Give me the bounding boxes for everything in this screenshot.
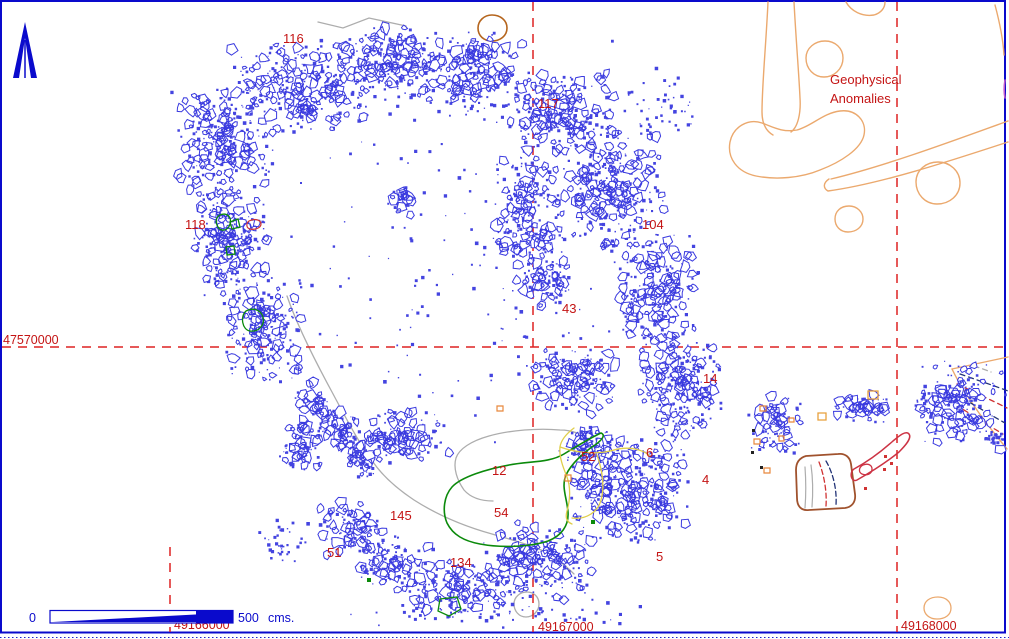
rubble-cluster-stones <box>754 391 803 452</box>
gray-circle-bottom <box>514 592 539 617</box>
anomaly-kidney <box>729 111 864 178</box>
rubble-scatter-layer <box>170 22 1007 629</box>
grid-label-easting: 49168000 <box>901 619 957 633</box>
grid-label-easting: 49167000 <box>538 620 594 634</box>
scale-bar-solid-end <box>196 611 233 623</box>
feature-label-6: 6 <box>646 445 653 460</box>
feature-label-52: 52 <box>581 449 595 464</box>
anomaly-line-left2 <box>791 2 800 132</box>
feature-label-134: 134 <box>450 555 472 570</box>
rubble-cluster-stones <box>529 348 620 419</box>
rubble-cluster-stones <box>834 390 890 421</box>
feature-label-43: 43 <box>562 301 576 316</box>
anomaly-circle-b <box>916 162 960 204</box>
geophysical-anomalies-label-line1: Geophysical <box>830 72 902 87</box>
geophysical-anomalies-label-line2: Anomalies <box>830 91 891 106</box>
trench-navy-dash <box>826 461 836 505</box>
feature-label-104: 104 <box>642 217 664 232</box>
trench-gray-line-1 <box>811 465 813 507</box>
feature-label-145: 145 <box>390 508 412 523</box>
anomaly-arc-top <box>846 2 885 15</box>
rubble-cluster-stones <box>419 36 527 103</box>
feature-label-5: 5 <box>656 549 663 564</box>
anomaly-edge-line <box>995 5 1004 55</box>
scale-max-label: 500 <box>238 611 259 625</box>
feature-label-117: 117 <box>538 96 559 111</box>
gray-zigzag-top <box>318 18 406 28</box>
anomaly-circle-c <box>835 206 863 232</box>
scale-unit-label: cms. <box>268 611 294 625</box>
rubble-cluster-stones <box>638 340 721 439</box>
red-blob-small <box>859 464 872 475</box>
edge-mark-magenta <box>1004 80 1005 98</box>
trench-red-dash <box>819 462 826 506</box>
rubble-cluster-stones <box>191 189 272 297</box>
handle-outline <box>851 433 910 481</box>
rubble-cluster-stones <box>347 407 453 462</box>
rubble-cluster-stones <box>484 520 596 605</box>
brown-circle <box>478 15 507 41</box>
yellow-square-2 <box>818 413 826 420</box>
feature-label-118: 118 <box>185 217 206 232</box>
rubble-cluster-dots <box>258 519 310 562</box>
rubble-cluster-stones <box>615 231 699 353</box>
rubble-cluster-stones <box>333 22 446 97</box>
geophysical-anomaly-layer <box>287 2 1008 617</box>
feature-label-54: 54 <box>494 505 508 520</box>
trench-gray-line-2 <box>805 467 806 508</box>
feature-label-51: 51 <box>327 545 341 560</box>
feature-label-14: 14 <box>703 371 717 386</box>
rubble-cluster-stones <box>388 187 416 219</box>
anomaly-line-left <box>762 2 773 135</box>
geophysical-anomalies-annotation: Geophysical Anomalies <box>830 72 902 106</box>
feature-label-12: 12 <box>492 463 506 478</box>
rubble-cluster-dots <box>624 67 694 134</box>
site-plan-canvas: 47570000491660004916700049168000 1161171… <box>0 0 1009 639</box>
fan-top-border <box>952 357 1008 369</box>
scale-bar: 0 500 cms. <box>29 611 294 626</box>
north-arrow <box>13 22 37 78</box>
feature-label-4: 4 <box>702 472 709 487</box>
anomaly-ellipse-bottom <box>924 597 951 619</box>
scale-zero-label: 0 <box>29 611 36 625</box>
map-viewport: 47570000491660004916700049168000 1161171… <box>0 0 1009 639</box>
orange-marks <box>497 406 794 481</box>
feature-label-116: 116 <box>283 31 304 46</box>
rubble-cluster-stones <box>282 415 323 471</box>
rubble-cluster-stones <box>227 41 368 132</box>
grid-label-northing: 47570000 <box>3 333 59 347</box>
